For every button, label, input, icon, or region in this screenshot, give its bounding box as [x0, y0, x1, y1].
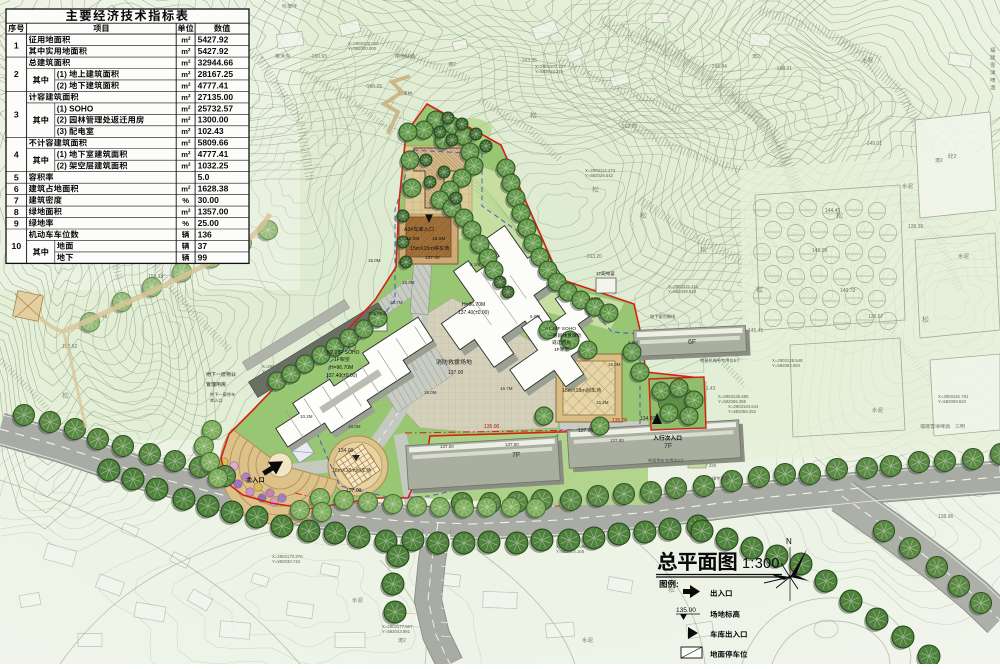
- svg-text:N2 28F SOHO: N2 28F SOHO: [327, 350, 360, 356]
- svg-text:102.43: 102.43: [198, 126, 224, 136]
- svg-text:1F: 1F: [368, 311, 374, 316]
- svg-text:18.0M: 18.0M: [348, 424, 361, 429]
- svg-text:1F: 1F: [596, 271, 602, 276]
- svg-text:137.40(±0.00): 137.40(±0.00): [326, 373, 357, 379]
- svg-text:2: 2: [757, 54, 760, 60]
- svg-text:137.00: 137.00: [505, 442, 519, 447]
- svg-text:137.00: 137.00: [440, 444, 454, 449]
- svg-text:15.0M: 15.0M: [432, 236, 445, 242]
- svg-text:m²: m²: [181, 150, 191, 159]
- svg-text:135.00: 135.00: [484, 424, 500, 430]
- svg-text:15mX15m: 15mX15m: [410, 246, 434, 252]
- svg-text:m²: m²: [181, 139, 191, 148]
- svg-text:Y=582026.542: Y=582026.542: [585, 173, 614, 178]
- svg-text:(3): (3): [57, 127, 67, 136]
- svg-text:%: %: [182, 196, 189, 205]
- svg-text:m²: m²: [181, 162, 191, 171]
- svg-text:m²: m²: [181, 104, 191, 113]
- svg-text:13.0M: 13.0M: [402, 280, 415, 285]
- svg-text:15.0M: 15.0M: [608, 362, 621, 367]
- svg-text:(1): (1): [57, 70, 67, 79]
- svg-text:-168.21: -168.21: [775, 66, 792, 72]
- svg-text:5427.92: 5427.92: [198, 46, 229, 56]
- svg-text:30.00: 30.00: [198, 195, 220, 205]
- svg-text:148.08: 148.08: [812, 248, 828, 254]
- svg-text:6.0M: 6.0M: [530, 314, 540, 319]
- svg-text:m²: m²: [181, 47, 191, 56]
- svg-text:Y=582000.000: Y=582000.000: [348, 46, 377, 51]
- svg-text:Y=582043.981: Y=582043.981: [382, 629, 411, 634]
- svg-text:5: 5: [14, 172, 19, 182]
- svg-text:25.00: 25.00: [198, 218, 220, 228]
- svg-text:A1 28F SOHO: A1 28F SOHO: [545, 326, 576, 332]
- svg-text:m²: m²: [181, 70, 191, 79]
- svg-text:13.0M: 13.0M: [588, 296, 601, 301]
- svg-text:135.00: 135.00: [676, 607, 696, 614]
- svg-text:m²: m²: [181, 58, 191, 67]
- svg-text:28167.25: 28167.25: [198, 69, 234, 79]
- svg-text:4.8M: 4.8M: [628, 340, 638, 345]
- svg-text:5.0: 5.0: [198, 172, 210, 182]
- svg-text:-149.01: -149.01: [865, 141, 882, 147]
- svg-text:m²: m²: [181, 36, 191, 45]
- svg-text:7F: 7F: [512, 452, 520, 459]
- svg-text:99: 99: [198, 252, 208, 262]
- svg-text:2: 2: [940, 158, 943, 164]
- svg-text:7F: 7F: [664, 443, 672, 450]
- svg-text:m²: m²: [181, 127, 191, 136]
- svg-text:140.73: 140.73: [840, 288, 856, 294]
- svg-text:10.2M: 10.2M: [300, 414, 313, 419]
- svg-text:15.2M: 15.2M: [596, 400, 609, 405]
- svg-text:137.00: 137.00: [578, 428, 594, 434]
- svg-text:(2): (2): [57, 116, 67, 125]
- svg-text:2: 2: [954, 154, 957, 160]
- svg-text:Y=582013.271: Y=582013.271: [535, 69, 564, 74]
- svg-text:137.00: 137.00: [425, 255, 440, 261]
- svg-text:10: 10: [12, 241, 22, 251]
- svg-text:Y=582069.523: Y=582069.523: [938, 399, 967, 404]
- svg-text:136.67: 136.67: [868, 314, 884, 320]
- svg-text:m²: m²: [181, 185, 191, 194]
- svg-text:8: 8: [14, 207, 19, 217]
- svg-text:1F: 1F: [334, 357, 340, 363]
- svg-text:(2): (2): [57, 81, 67, 90]
- svg-text:15.0M: 15.0M: [368, 258, 381, 263]
- svg-text:m²: m²: [181, 207, 191, 216]
- svg-text:-166.04: -166.04: [710, 64, 727, 70]
- svg-text:18mX18m: 18mX18m: [562, 388, 586, 394]
- svg-text:137.40(±0.00): 137.40(±0.00): [458, 310, 489, 316]
- svg-text:1628.38: 1628.38: [198, 184, 229, 194]
- svg-text:4777.41: 4777.41: [198, 149, 229, 159]
- svg-text:137.00: 137.00: [346, 488, 362, 494]
- svg-text:139.35: 139.35: [908, 224, 924, 230]
- svg-text:2: 2: [453, 62, 456, 68]
- svg-text:8.1M: 8.1M: [470, 262, 480, 267]
- svg-text:135.00: 135.00: [612, 418, 628, 424]
- svg-text:Y=582056.252: Y=582056.252: [728, 409, 757, 414]
- svg-text:m²: m²: [181, 116, 191, 125]
- svg-text:-163.20: -163.20: [585, 254, 602, 260]
- svg-text:134.30: 134.30: [640, 416, 656, 422]
- svg-text:152.62: 152.62: [62, 344, 78, 350]
- svg-text:1F: 1F: [554, 347, 560, 353]
- svg-text:27135.00: 27135.00: [198, 92, 234, 102]
- svg-text:32944.66: 32944.66: [198, 57, 234, 67]
- svg-text:Y=582030.710: Y=582030.710: [272, 559, 301, 564]
- svg-text:1357.00: 1357.00: [198, 206, 229, 216]
- svg-text:3: 3: [14, 109, 19, 119]
- svg-text:145.41: 145.41: [748, 328, 764, 334]
- svg-text:2: 2: [14, 69, 19, 79]
- svg-text:7: 7: [14, 195, 19, 205]
- svg-text:Y=582039.813: Y=582039.813: [668, 289, 697, 294]
- svg-text::: :: [676, 579, 679, 589]
- svg-text:1300.00: 1300.00: [198, 115, 229, 125]
- svg-text:10.0M: 10.0M: [406, 236, 419, 242]
- svg-text:2: 2: [403, 638, 406, 644]
- svg-text:(2): (2): [57, 162, 67, 171]
- svg-text:18mX18m: 18mX18m: [332, 468, 356, 474]
- svg-text:37: 37: [198, 241, 208, 251]
- svg-text:137.00: 137.00: [448, 370, 464, 376]
- svg-text:H=96.70M: H=96.70M: [462, 302, 485, 308]
- svg-text:4777.41: 4777.41: [198, 80, 229, 90]
- svg-text:13.7M: 13.7M: [390, 300, 403, 305]
- svg-text:%: %: [182, 219, 189, 228]
- svg-text:6: 6: [14, 184, 19, 194]
- svg-text:m²: m²: [181, 93, 191, 102]
- svg-text:16.0M: 16.0M: [424, 390, 437, 395]
- svg-text:-160.93: -160.93: [310, 54, 327, 60]
- svg-text:134.00: 134.00: [338, 448, 354, 454]
- svg-text:25732.57: 25732.57: [198, 103, 234, 113]
- svg-text:137.00: 137.00: [610, 438, 624, 443]
- svg-text:1:300: 1:300: [742, 556, 780, 572]
- svg-text:1: 1: [14, 41, 19, 51]
- svg-text:5809.66: 5809.66: [198, 138, 229, 148]
- svg-text:138.96: 138.96: [938, 514, 954, 520]
- svg-text:4: 4: [14, 150, 19, 160]
- svg-text:136: 136: [198, 229, 212, 239]
- svg-text:5427.92: 5427.92: [198, 35, 229, 45]
- svg-text:N: N: [786, 537, 792, 546]
- svg-text:-162.76: -162.76: [620, 124, 637, 130]
- svg-text:(1): (1): [57, 150, 67, 159]
- svg-text:-160.29: -160.29: [365, 84, 382, 90]
- svg-text:6F: 6F: [688, 339, 696, 346]
- svg-text:Y=582052.084: Y=582052.084: [772, 363, 801, 368]
- svg-text:H=96.70M: H=96.70M: [330, 365, 353, 371]
- svg-text:(1) SOHO: (1) SOHO: [57, 104, 94, 113]
- svg-text:144.45: 144.45: [825, 208, 841, 214]
- svg-text:1032.25: 1032.25: [198, 161, 229, 171]
- svg-text:9: 9: [14, 218, 19, 228]
- svg-text:m²: m²: [181, 81, 191, 90]
- svg-text:A3#: A3#: [404, 227, 413, 233]
- svg-text:16.7M: 16.7M: [500, 386, 513, 391]
